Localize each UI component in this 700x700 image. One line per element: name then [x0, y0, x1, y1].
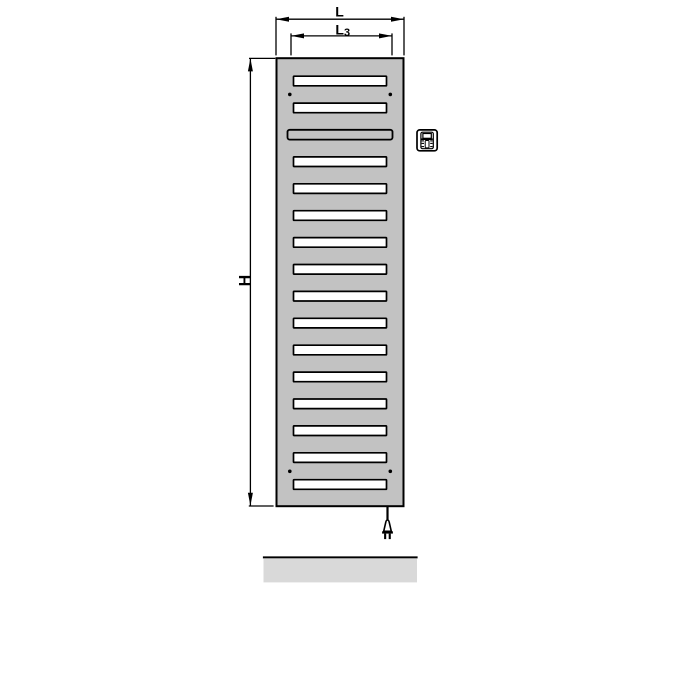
svg-text:L: L: [335, 4, 344, 20]
svg-text:H: H: [237, 275, 254, 287]
